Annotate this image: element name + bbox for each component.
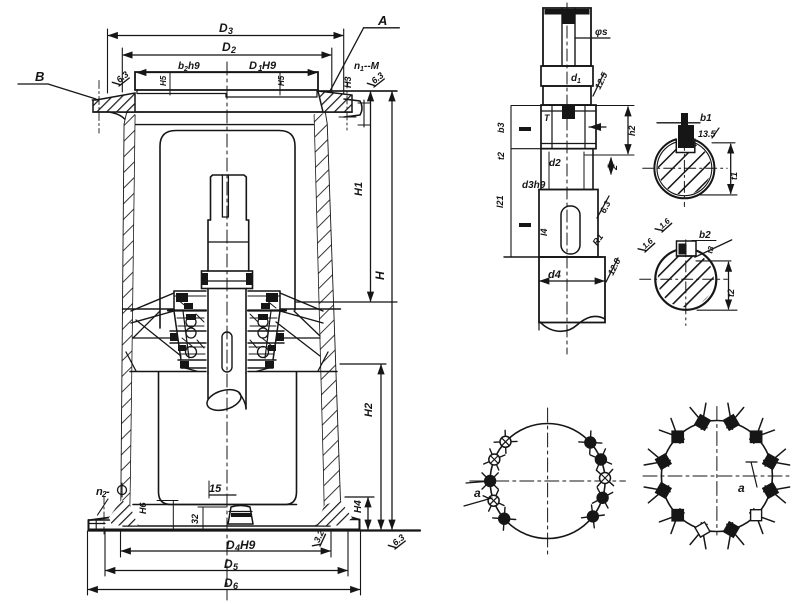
svg-text:12.8: 12.8	[606, 257, 623, 277]
svg-text:l4: l4	[539, 228, 549, 236]
svg-text:φs: φs	[595, 27, 608, 38]
svg-text:D: D	[226, 538, 235, 552]
svg-text:a: a	[738, 481, 745, 495]
svg-text:b2: b2	[699, 230, 711, 241]
svg-text:H6: H6	[138, 502, 148, 514]
svg-text:t3: t3	[705, 245, 716, 255]
svg-text:t1: t1	[729, 172, 739, 180]
svg-text:R1: R1	[590, 232, 605, 247]
svg-text:H9: H9	[262, 60, 277, 72]
svg-text:b3: b3	[496, 122, 506, 133]
svg-text:h9: h9	[188, 61, 200, 72]
svg-text:1.6: 1.6	[657, 216, 672, 230]
svg-text:1.6: 1.6	[640, 236, 655, 250]
svg-text:15: 15	[209, 483, 222, 495]
svg-text:D: D	[222, 40, 231, 54]
svg-text:H1: H1	[353, 182, 365, 196]
svg-text:B: B	[35, 69, 44, 84]
svg-text:b1: b1	[700, 113, 712, 124]
svg-text:--M: --M	[364, 61, 380, 72]
svg-text:H3: H3	[343, 76, 353, 88]
svg-text:t2: t2	[496, 152, 506, 160]
svg-text:H5: H5	[159, 75, 168, 86]
svg-text:H5: H5	[277, 75, 286, 86]
svg-text:2: 2	[609, 165, 619, 171]
svg-text:d3h9: d3h9	[522, 180, 546, 191]
svg-text:l21: l21	[495, 195, 505, 208]
svg-text:H4: H4	[353, 500, 364, 513]
svg-text:D: D	[224, 557, 233, 571]
svg-text:h2: h2	[627, 125, 637, 136]
svg-text:6.3: 6.3	[390, 532, 406, 548]
svg-text:2: 2	[230, 45, 236, 55]
svg-text:6.3: 6.3	[369, 70, 385, 86]
svg-text:t2: t2	[726, 289, 736, 297]
svg-text:6.3: 6.3	[114, 69, 130, 85]
svg-text:H2: H2	[363, 403, 375, 417]
svg-text:D: D	[249, 60, 257, 72]
svg-text:-: -	[106, 486, 110, 498]
svg-text:A: A	[377, 13, 387, 28]
svg-text:d2: d2	[549, 158, 561, 169]
svg-text:a: a	[474, 486, 481, 500]
svg-text:D: D	[224, 576, 233, 590]
svg-text:H: H	[373, 271, 387, 280]
svg-text:12.5: 12.5	[593, 70, 610, 91]
svg-text:32: 32	[190, 514, 200, 524]
svg-text:13.5: 13.5	[698, 129, 717, 139]
svg-text:D: D	[219, 21, 228, 35]
svg-text:d4: d4	[548, 269, 561, 281]
svg-text:H9: H9	[240, 538, 256, 552]
svg-text:T: T	[544, 113, 551, 123]
svg-text:1: 1	[577, 78, 581, 85]
svg-text:3: 3	[228, 26, 233, 36]
